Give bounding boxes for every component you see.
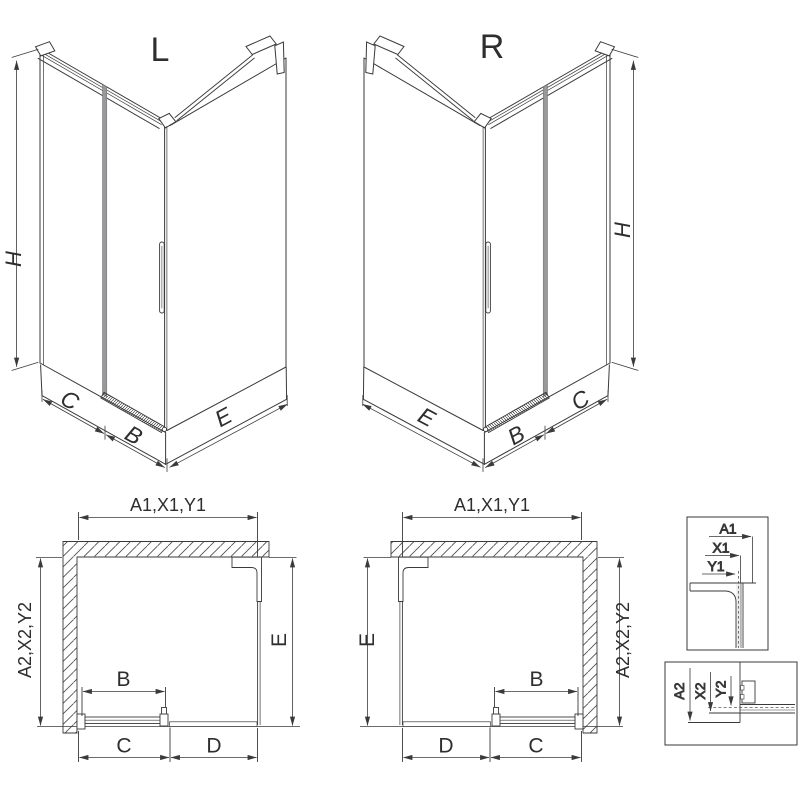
- shower-enclosure-technical-drawing: L H C B E R H E B C A1,X1,Y1 A2,X2,Y2 E …: [0, 0, 800, 800]
- wall-profile-section: [690, 571, 756, 648]
- drawing-sheet: L H C B E R H E B C A1,X1,Y1 A2,X2,Y2 E …: [0, 0, 800, 800]
- wall-hatch-right-plan: [391, 542, 597, 734]
- detail-dim-a2: A2: [671, 682, 687, 699]
- detail-dim-a1: A1: [719, 521, 736, 537]
- detail-dim-x2: X2: [692, 682, 708, 699]
- plan-view-right: A1,X1,Y1 E A2,X2,Y2 B D C: [356, 495, 633, 762]
- wall-hatch-left-plan: [63, 542, 269, 734]
- variant-label-left: L: [151, 31, 170, 69]
- plan-left-dim-b: B: [116, 668, 130, 691]
- plan-right-dim-b: B: [529, 668, 543, 691]
- iso-right-dim-e: E: [414, 402, 440, 432]
- detail-view-wall-profile: A1 X1 Y1: [687, 517, 768, 650]
- plan-left-dim-right: E: [268, 633, 291, 647]
- detail-dim-y1: Y1: [707, 558, 724, 574]
- detail-dim-x1: X1: [712, 540, 729, 556]
- iso-left-dim-c: C: [56, 385, 83, 416]
- plan-left-dim-d: D: [206, 735, 221, 758]
- iso-left-dim-e: E: [210, 402, 236, 432]
- plan-left-dim-left: A2,X2,Y2: [15, 602, 35, 678]
- plan-right-dim-top: A1,X1,Y1: [454, 495, 530, 515]
- iso-left-dim-h: H: [1, 251, 26, 267]
- iso-view-left: L H C B E: [1, 31, 287, 472]
- plan-right-dim-left: E: [356, 633, 379, 647]
- detail-dim-y2: Y2: [713, 680, 729, 697]
- plan-left-dim-top: A1,X1,Y1: [130, 495, 206, 515]
- variant-label-right: R: [480, 28, 505, 66]
- iso-right-dim-c: C: [567, 384, 594, 415]
- detail-view-bottom-rail: A2 X2 Y2: [665, 662, 797, 745]
- plan-right-dim-d: D: [438, 735, 453, 758]
- iso-view-right: R H E B C: [363, 28, 638, 472]
- plan-left-dim-c: C: [116, 735, 131, 758]
- plan-right-dim-c: C: [528, 735, 543, 758]
- plan-view-left: A1,X1,Y1 A2,X2,Y2 E B C D: [15, 495, 300, 762]
- plan-right-dim-right: A2,X2,Y2: [613, 602, 633, 678]
- iso-right-dim-h: H: [610, 222, 635, 238]
